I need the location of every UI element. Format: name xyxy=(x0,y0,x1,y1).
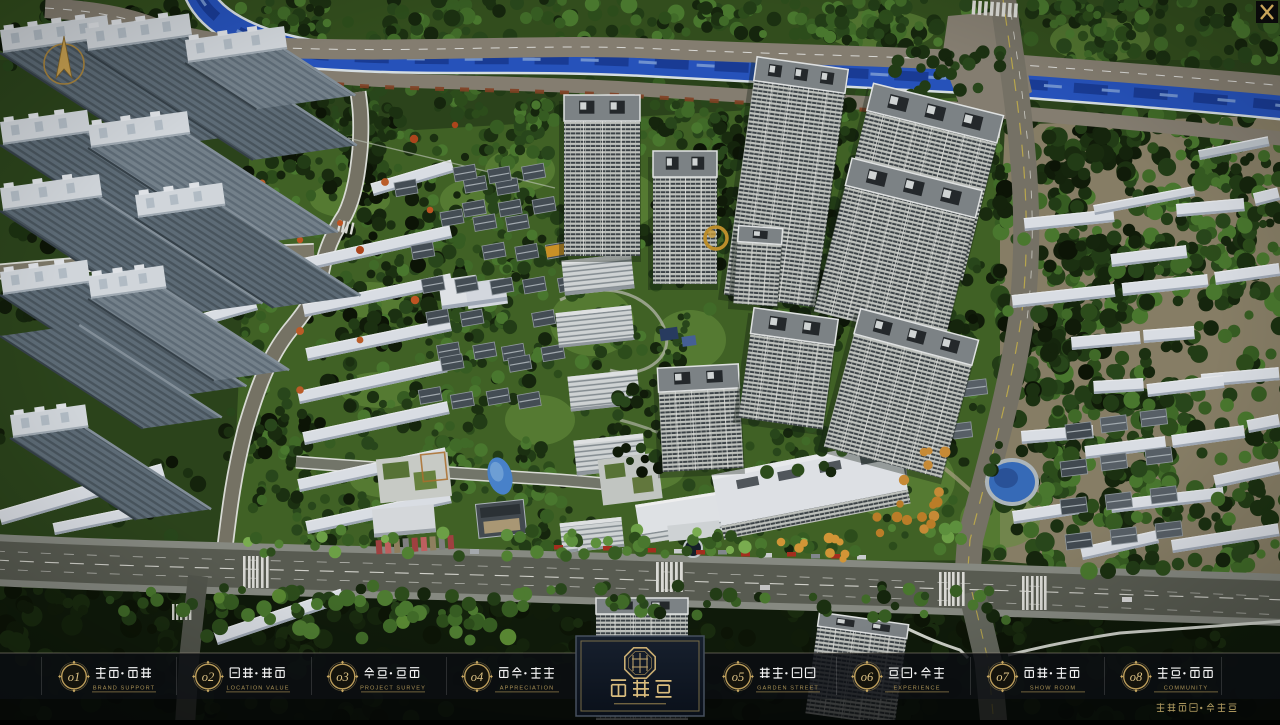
svg-text:o2: o2 xyxy=(202,670,215,684)
svg-text:LOCATION VALUE: LOCATION VALUE xyxy=(226,686,289,692)
svg-text:BRAND SUPPORT: BRAND SUPPORT xyxy=(93,686,155,692)
svg-text:o4: o4 xyxy=(471,670,484,684)
svg-text:PROJECT SURVEY: PROJECT SURVEY xyxy=(360,686,426,692)
svg-text:GARDEN STREET: GARDEN STREET xyxy=(757,686,819,692)
svg-text:o5: o5 xyxy=(732,670,745,684)
svg-text:o1: o1 xyxy=(68,670,81,684)
svg-text:o3: o3 xyxy=(336,670,349,684)
svg-text:APPRECIATION: APPRECIATION xyxy=(500,686,554,692)
